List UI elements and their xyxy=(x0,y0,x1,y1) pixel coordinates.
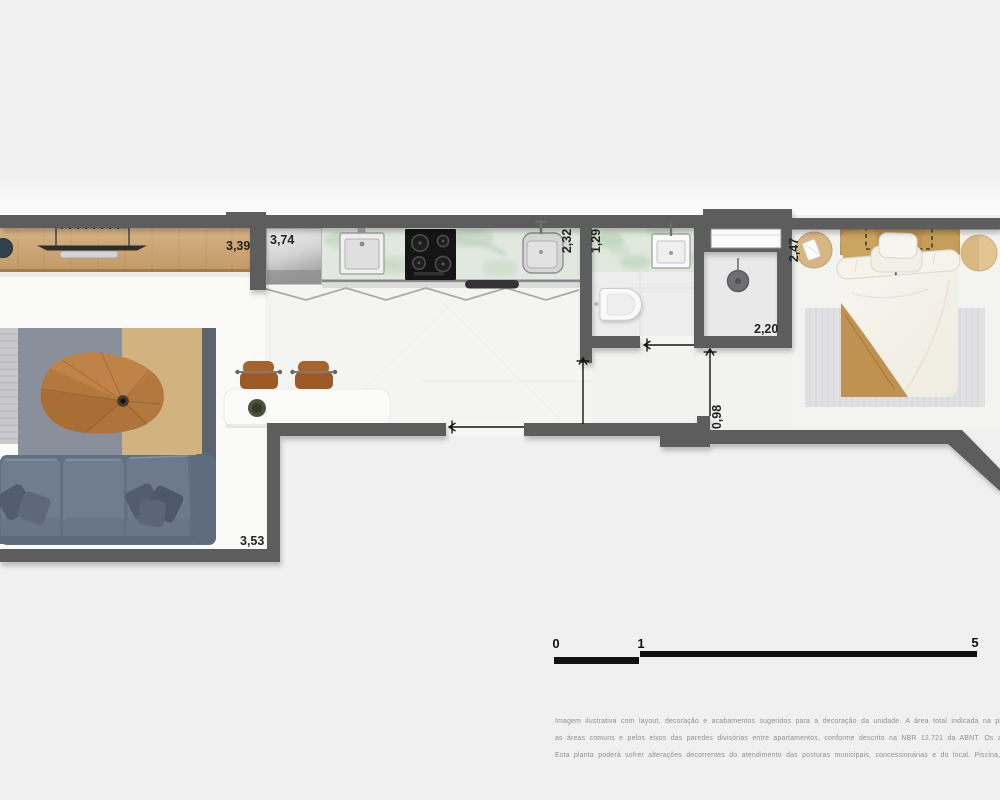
svg-text:3,74: 3,74 xyxy=(270,233,294,247)
svg-text:Imagem ilustrativa com layo: Imagem ilustrativa com layout, decoração… xyxy=(555,718,1000,725)
svg-text:0: 0 xyxy=(552,636,559,651)
svg-text:2,20: 2,20 xyxy=(754,322,778,336)
svg-text:5: 5 xyxy=(971,635,978,650)
svg-text:1,29: 1,29 xyxy=(589,229,603,253)
svg-text:0,98: 0,98 xyxy=(710,405,724,429)
svg-text:3,39: 3,39 xyxy=(226,239,250,253)
svg-text:3,53: 3,53 xyxy=(240,534,264,548)
svg-text:2,32: 2,32 xyxy=(560,229,574,253)
svg-text:Esta planta poderá sofrer: Esta planta poderá sofrer alterações dec… xyxy=(555,752,1000,759)
svg-text:1: 1 xyxy=(637,636,644,651)
svg-text:2,47: 2,47 xyxy=(787,238,801,262)
svg-text:as áreas comuns e pelos e: as áreas comuns e pelos eixos das parede… xyxy=(555,735,1000,742)
